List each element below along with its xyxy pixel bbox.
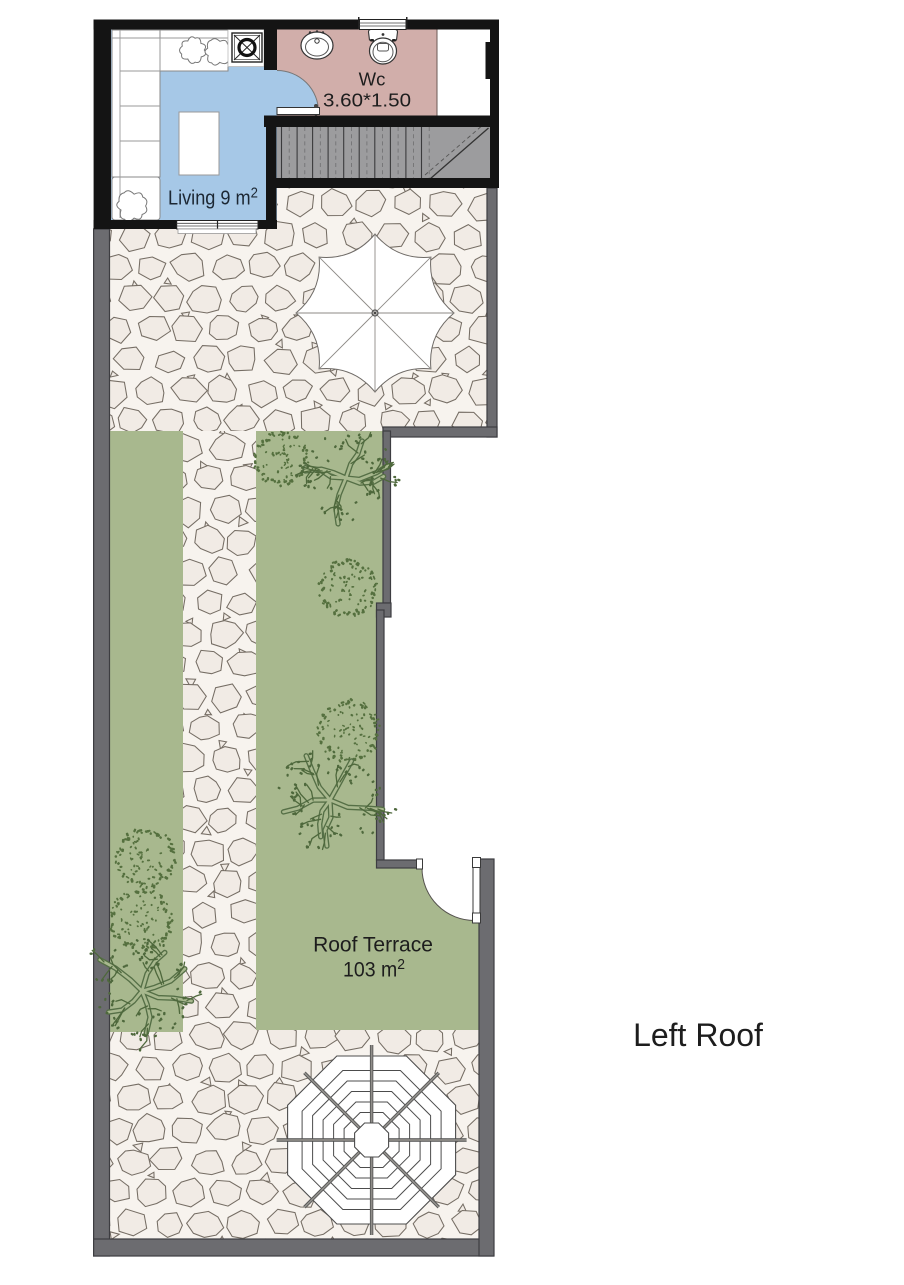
svg-text:3.60*1.50: 3.60*1.50 — [323, 90, 411, 111]
svg-text:103 m2: 103 m2 — [343, 956, 405, 982]
svg-text:Living 9 m2: Living 9 m2 — [168, 186, 258, 210]
svg-text:Wc: Wc — [359, 69, 386, 90]
svg-text:Left Roof: Left Roof — [633, 1017, 763, 1053]
svg-text:Roof Terrace: Roof Terrace — [313, 934, 433, 957]
